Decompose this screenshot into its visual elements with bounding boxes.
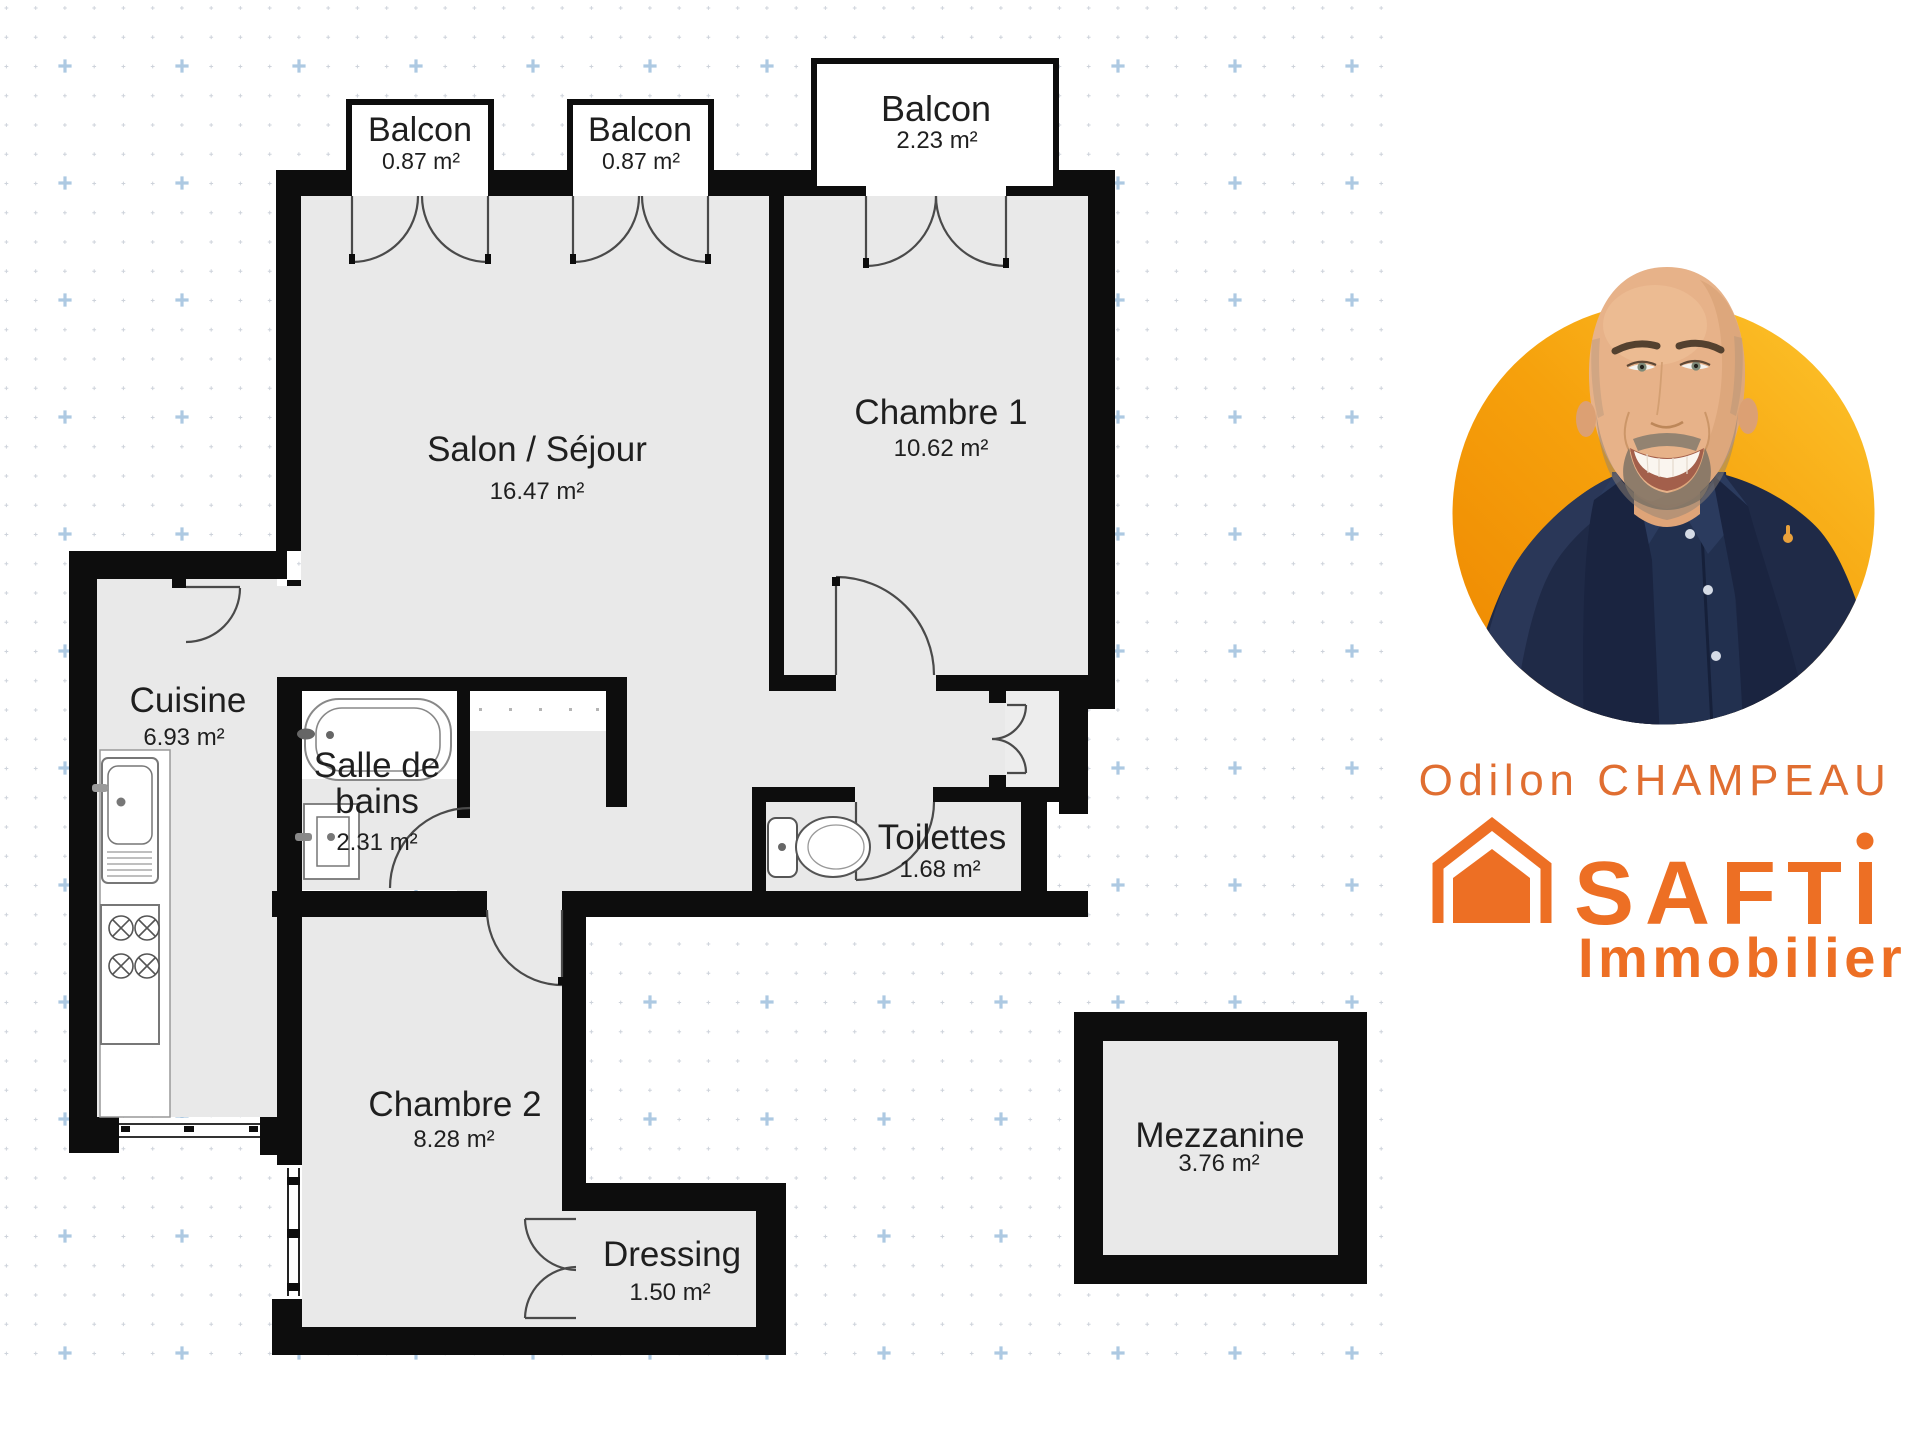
svg-text:Toilettes: Toilettes [878, 818, 1006, 857]
svg-text:Salle de: Salle de [314, 746, 440, 785]
svg-text:Balcon: Balcon [368, 111, 472, 149]
svg-text:Dressing: Dressing [603, 1235, 741, 1274]
svg-text:0.87 m²: 0.87 m² [602, 148, 680, 174]
svg-text:Immobilier: Immobilier [1578, 926, 1906, 989]
svg-text:Odilon CHAMPEAU: Odilon CHAMPEAU [1419, 756, 1892, 805]
svg-text:Cuisine: Cuisine [130, 681, 247, 720]
svg-text:Balcon: Balcon [588, 111, 692, 149]
svg-text:8.28 m²: 8.28 m² [413, 1126, 494, 1153]
svg-text:16.47 m²: 16.47 m² [490, 478, 585, 505]
svg-text:1.68 m²: 1.68 m² [899, 856, 980, 883]
svg-text:2.31 m²: 2.31 m² [336, 829, 417, 856]
svg-text:Salon / Séjour: Salon / Séjour [427, 430, 647, 469]
svg-text:Balcon: Balcon [881, 88, 991, 129]
svg-text:3.76 m²: 3.76 m² [1178, 1150, 1259, 1177]
svg-text:2.23 m²: 2.23 m² [896, 127, 977, 154]
svg-text:0.87 m²: 0.87 m² [382, 148, 460, 174]
svg-text:10.62 m²: 10.62 m² [894, 435, 989, 462]
svg-text:1.50 m²: 1.50 m² [629, 1279, 710, 1306]
svg-text:6.93 m²: 6.93 m² [143, 724, 224, 751]
svg-text:Chambre 2: Chambre 2 [368, 1085, 541, 1124]
svg-text:bains: bains [335, 782, 419, 821]
svg-text:Chambre 1: Chambre 1 [854, 393, 1027, 432]
